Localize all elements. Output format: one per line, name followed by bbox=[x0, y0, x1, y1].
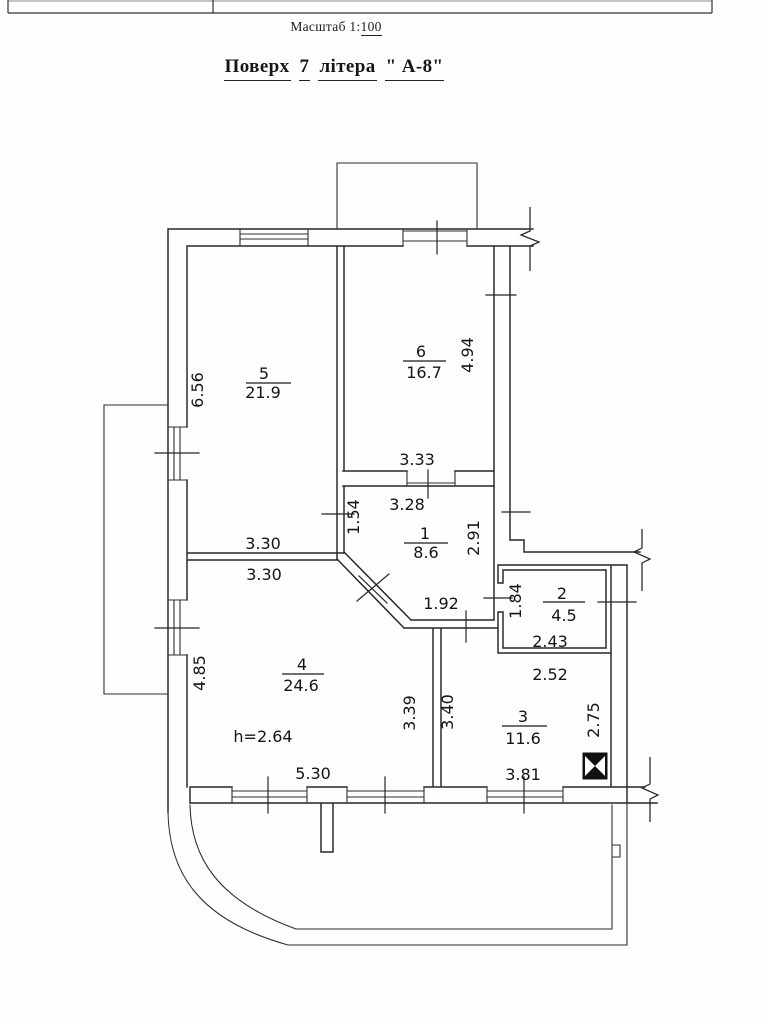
dim-381: 3.81 bbox=[505, 765, 541, 784]
room-3-number: 3 bbox=[518, 707, 528, 726]
room-2-number: 2 bbox=[557, 584, 567, 603]
room-1-area: 8.6 bbox=[413, 543, 438, 562]
dim-494: 4.94 bbox=[458, 337, 477, 373]
room-5-number: 5 bbox=[259, 364, 269, 383]
table-fragment bbox=[8, 0, 712, 13]
room-6-number: 6 bbox=[416, 342, 426, 361]
dim-275: 2.75 bbox=[584, 702, 603, 738]
dim-485: 4.85 bbox=[190, 655, 209, 691]
dim-154: 1.54 bbox=[344, 499, 363, 535]
dim-339: 3.39 bbox=[400, 695, 419, 731]
dim-243: 2.43 bbox=[532, 632, 568, 651]
vent-shaft-icon bbox=[583, 753, 607, 779]
balcony-and-window-lines bbox=[104, 163, 627, 945]
room-4-number: 4 bbox=[297, 655, 307, 674]
scanned-floorplan-page: Масштаб 1:100 Поверх7літера" А-8" bbox=[0, 0, 768, 1024]
room-1-number: 1 bbox=[420, 524, 430, 543]
dim-340: 3.40 bbox=[438, 694, 457, 730]
ceiling-height-note: h=2.64 bbox=[233, 727, 292, 746]
room-2-area: 4.5 bbox=[551, 606, 576, 625]
room-3-area: 11.6 bbox=[505, 729, 541, 748]
dim-530: 5.30 bbox=[295, 764, 331, 783]
dimension-ticks bbox=[155, 221, 636, 813]
dim-656: 6.56 bbox=[188, 372, 207, 408]
dim-330-top: 3.30 bbox=[245, 534, 281, 553]
room-5-area: 21.9 bbox=[245, 383, 281, 402]
floor-plan-drawing: 5 21.9 6 16.7 1 8.6 2 4.5 3 11.6 4 24.6 … bbox=[0, 0, 768, 1024]
dim-328: 3.28 bbox=[389, 495, 425, 514]
dim-291: 2.91 bbox=[464, 520, 483, 556]
dim-192: 1.92 bbox=[423, 594, 459, 613]
dim-252: 2.52 bbox=[532, 665, 568, 684]
room-4-area: 24.6 bbox=[283, 676, 319, 695]
dim-184: 1.84 bbox=[506, 583, 525, 619]
dim-333: 3.33 bbox=[399, 450, 435, 469]
room-6-area: 16.7 bbox=[406, 363, 442, 382]
dim-330-bottom: 3.30 bbox=[246, 565, 282, 584]
